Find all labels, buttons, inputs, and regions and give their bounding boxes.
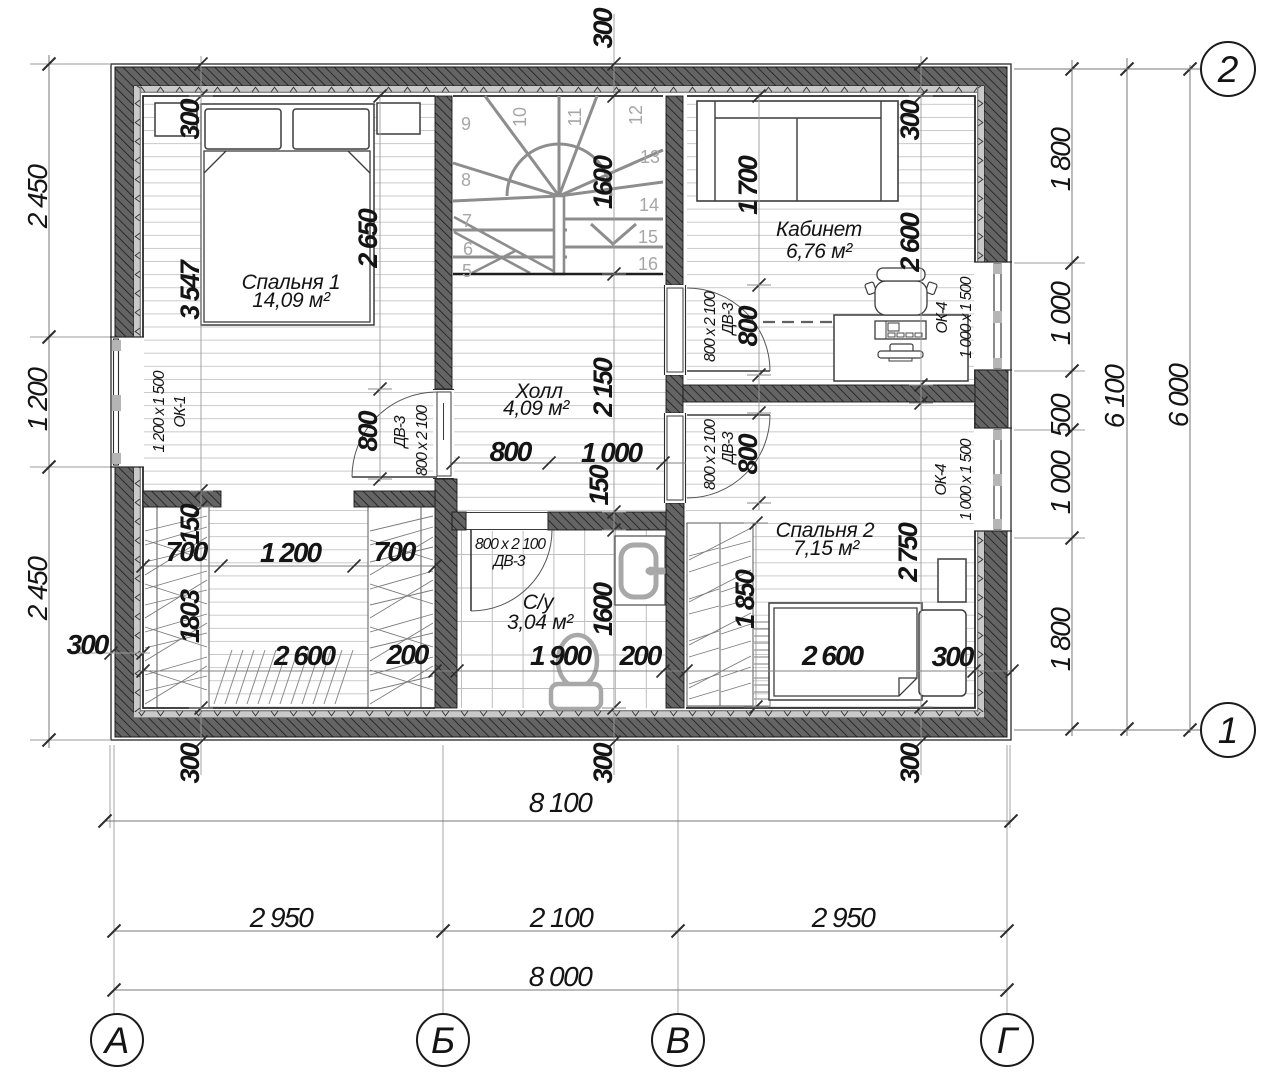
svg-text:700: 700 [166,536,209,567]
svg-text:14: 14 [639,195,659,215]
svg-text:8: 8 [461,170,471,190]
svg-text:Б: Б [431,1020,455,1061]
svg-text:Кабинет: Кабинет [776,218,862,241]
svg-text:3,04 м²: 3,04 м² [507,611,574,634]
svg-text:300: 300 [588,7,618,48]
svg-text:2: 2 [1217,49,1239,90]
svg-text:300: 300 [932,641,975,672]
svg-text:1 800: 1 800 [1045,607,1076,671]
svg-text:300: 300 [175,98,205,139]
svg-text:2 100: 2 100 [529,902,594,933]
svg-text:200: 200 [386,639,430,670]
svg-text:8 100: 8 100 [529,787,593,818]
svg-text:ОК-4: ОК-4 [934,301,951,333]
svg-text:800: 800 [490,436,533,467]
svg-text:6,76 м²: 6,76 м² [786,240,853,263]
svg-text:200: 200 [619,640,663,671]
svg-text:4,09 м²: 4,09 м² [503,397,570,420]
svg-text:1 200: 1 200 [22,367,53,431]
svg-text:800 х 2 100: 800 х 2 100 [702,419,719,490]
svg-text:14,09 м²: 14,09 м² [252,289,331,312]
svg-text:800: 800 [733,305,763,346]
svg-text:2 600: 2 600 [273,640,336,671]
svg-text:8 000: 8 000 [529,961,593,992]
svg-text:А: А [103,1020,130,1061]
svg-text:1 000 х 1 500: 1 000 х 1 500 [958,276,975,358]
svg-text:2 450: 2 450 [22,556,53,621]
svg-text:800 х 2 100: 800 х 2 100 [702,291,719,362]
svg-text:1: 1 [1218,710,1239,751]
svg-text:ДВ-3: ДВ-3 [392,415,409,449]
svg-text:15: 15 [638,227,658,247]
svg-text:2 600: 2 600 [801,640,864,671]
svg-text:800 х 2 100: 800 х 2 100 [475,536,546,553]
svg-text:150: 150 [584,464,614,505]
svg-text:ДВ-3: ДВ-3 [720,302,737,336]
svg-text:1 000: 1 000 [581,437,643,468]
svg-text:1 700: 1 700 [733,155,763,215]
svg-text:1 000 х 1 500: 1 000 х 1 500 [958,438,975,520]
svg-text:800: 800 [733,433,763,474]
svg-text:1 900: 1 900 [530,640,592,671]
svg-text:1600: 1600 [588,155,618,209]
svg-text:6 000: 6 000 [1163,363,1194,427]
svg-text:700: 700 [374,536,417,567]
svg-text:1 800: 1 800 [1045,127,1076,191]
svg-text:7,15 м²: 7,15 м² [793,537,860,560]
svg-text:1 200: 1 200 [260,537,322,568]
svg-text:ДВ-3: ДВ-3 [491,553,525,570]
svg-text:В: В [666,1020,691,1061]
svg-text:13: 13 [640,147,660,167]
svg-text:500: 500 [1045,393,1076,437]
svg-text:6 100: 6 100 [1099,364,1130,428]
svg-text:2 950: 2 950 [811,902,876,933]
svg-text:2 150: 2 150 [588,357,618,418]
svg-text:1803: 1803 [175,589,205,643]
svg-text:1600: 1600 [588,582,618,636]
svg-text:800: 800 [353,410,383,451]
svg-text:5: 5 [462,261,472,281]
svg-text:300: 300 [175,742,205,783]
svg-text:7: 7 [462,211,472,231]
svg-text:2 450: 2 450 [22,164,53,229]
svg-text:300: 300 [588,742,618,783]
svg-text:2 950: 2 950 [249,902,314,933]
svg-text:1 000: 1 000 [1045,281,1076,345]
svg-text:800 х 2 100: 800 х 2 100 [414,405,431,476]
svg-text:300: 300 [67,629,110,660]
svg-text:1 200 х 1 500: 1 200 х 1 500 [151,370,168,452]
svg-text:300: 300 [895,742,925,783]
svg-text:300: 300 [895,99,925,140]
svg-text:3 547: 3 547 [175,258,205,320]
svg-text:Г: Г [997,1020,1020,1061]
svg-text:ОК-1: ОК-1 [172,396,189,427]
svg-text:1 850: 1 850 [730,569,760,629]
svg-text:ОК-4: ОК-4 [933,463,950,495]
svg-text:ДВ-3: ДВ-3 [720,431,737,465]
svg-text:11: 11 [565,108,585,127]
svg-text:2 750: 2 750 [893,522,923,583]
svg-text:16: 16 [638,254,658,274]
svg-text:2 650: 2 650 [353,208,383,269]
svg-text:10: 10 [510,107,530,127]
svg-text:9: 9 [461,114,471,134]
svg-text:1 000: 1 000 [1045,450,1076,514]
svg-text:12: 12 [626,105,646,125]
svg-text:2 600: 2 600 [895,212,925,273]
svg-text:6: 6 [463,239,473,259]
